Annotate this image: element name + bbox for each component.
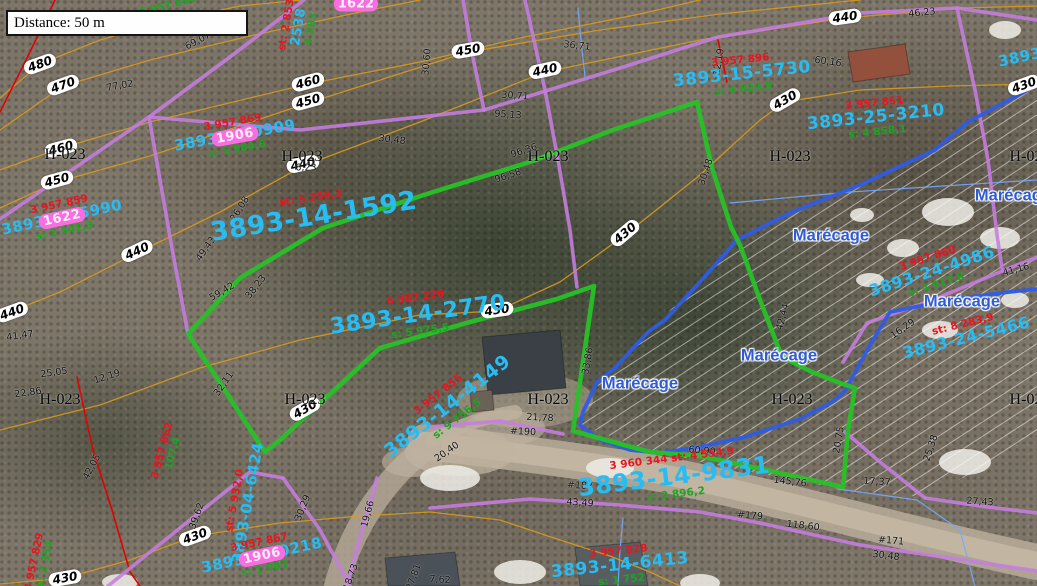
snow-patch — [586, 458, 634, 478]
wetland-hatch-area — [580, 85, 1037, 497]
cadastral-lot-line — [525, 0, 577, 287]
building-roof — [848, 44, 910, 82]
snow-patch — [494, 560, 546, 584]
snow-patch — [420, 465, 480, 491]
cadastral-lot-line — [463, 0, 484, 110]
building-roof — [470, 390, 494, 412]
building-roof — [482, 330, 566, 395]
building-roof — [385, 552, 460, 586]
snow-patch — [680, 574, 720, 586]
distance-scale-box: Distance: 50 m — [6, 10, 248, 36]
map-overlay-lines — [0, 0, 1037, 586]
snow-patch — [989, 21, 1021, 39]
cadastral-lot-line — [925, 498, 1037, 513]
stream-line — [578, 8, 585, 77]
measurement-red-line — [718, 40, 727, 82]
cadastral-lot-line — [283, 478, 350, 586]
map-viewport[interactable]: 4804804704604604504504504404404404404404… — [0, 0, 1037, 586]
distance-scale-label: Distance: 50 m — [14, 15, 105, 32]
cadastral-lot-line — [108, 472, 283, 586]
